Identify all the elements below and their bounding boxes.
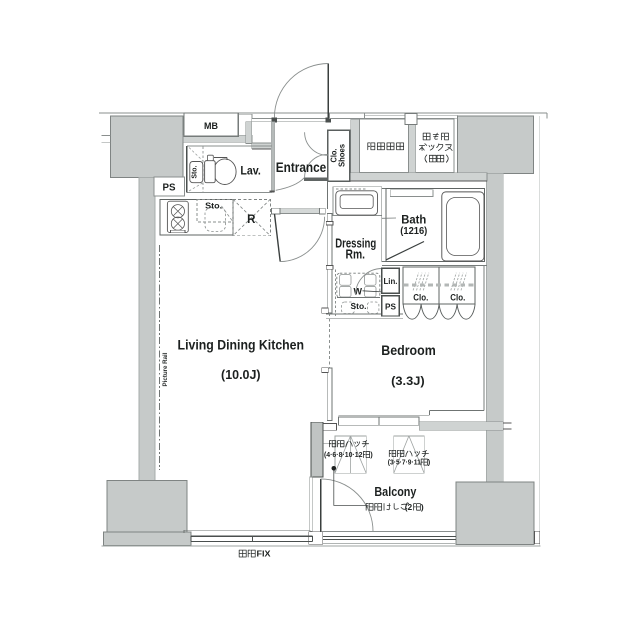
svg-text:Sto.: Sto.: [351, 301, 367, 311]
svg-text:Clo.: Clo.: [328, 149, 338, 163]
svg-text:Sto.: Sto.: [190, 166, 199, 179]
svg-text:PS: PS: [163, 182, 176, 193]
svg-text:W: W: [353, 286, 362, 296]
svg-text:): ): [421, 502, 424, 512]
svg-text:(2: (2: [405, 502, 413, 512]
svg-text:Sto.: Sto.: [205, 201, 222, 211]
svg-text:FIX: FIX: [257, 549, 271, 559]
svg-text:Balcony: Balcony: [374, 485, 416, 499]
svg-text:Clo.: Clo.: [450, 292, 465, 303]
svg-text:(10.0J): (10.0J): [221, 368, 261, 382]
svg-text:Entrance: Entrance: [276, 159, 327, 175]
svg-text:(3·5·7·9·11: (3·5·7·9·11: [388, 458, 421, 467]
svg-text:PS: PS: [385, 302, 396, 312]
svg-text:Rm.: Rm.: [346, 247, 366, 262]
svg-text:(4·6·8·10·12: (4·6·8·10·12: [324, 450, 363, 459]
svg-text:MB: MB: [204, 121, 218, 131]
svg-text:Bedroom: Bedroom: [381, 343, 436, 358]
svg-text:Living Dining Kitchen: Living Dining Kitchen: [178, 337, 305, 353]
svg-text:(1216): (1216): [400, 225, 427, 237]
svg-text:Clo.: Clo.: [413, 292, 428, 303]
svg-text:Lav.: Lav.: [240, 164, 261, 178]
svg-text:Picture Rail: Picture Rail: [162, 352, 169, 386]
svg-text:(3.3J): (3.3J): [391, 374, 425, 388]
svg-text:Lin.: Lin.: [384, 276, 398, 286]
svg-text:R: R: [247, 214, 256, 226]
